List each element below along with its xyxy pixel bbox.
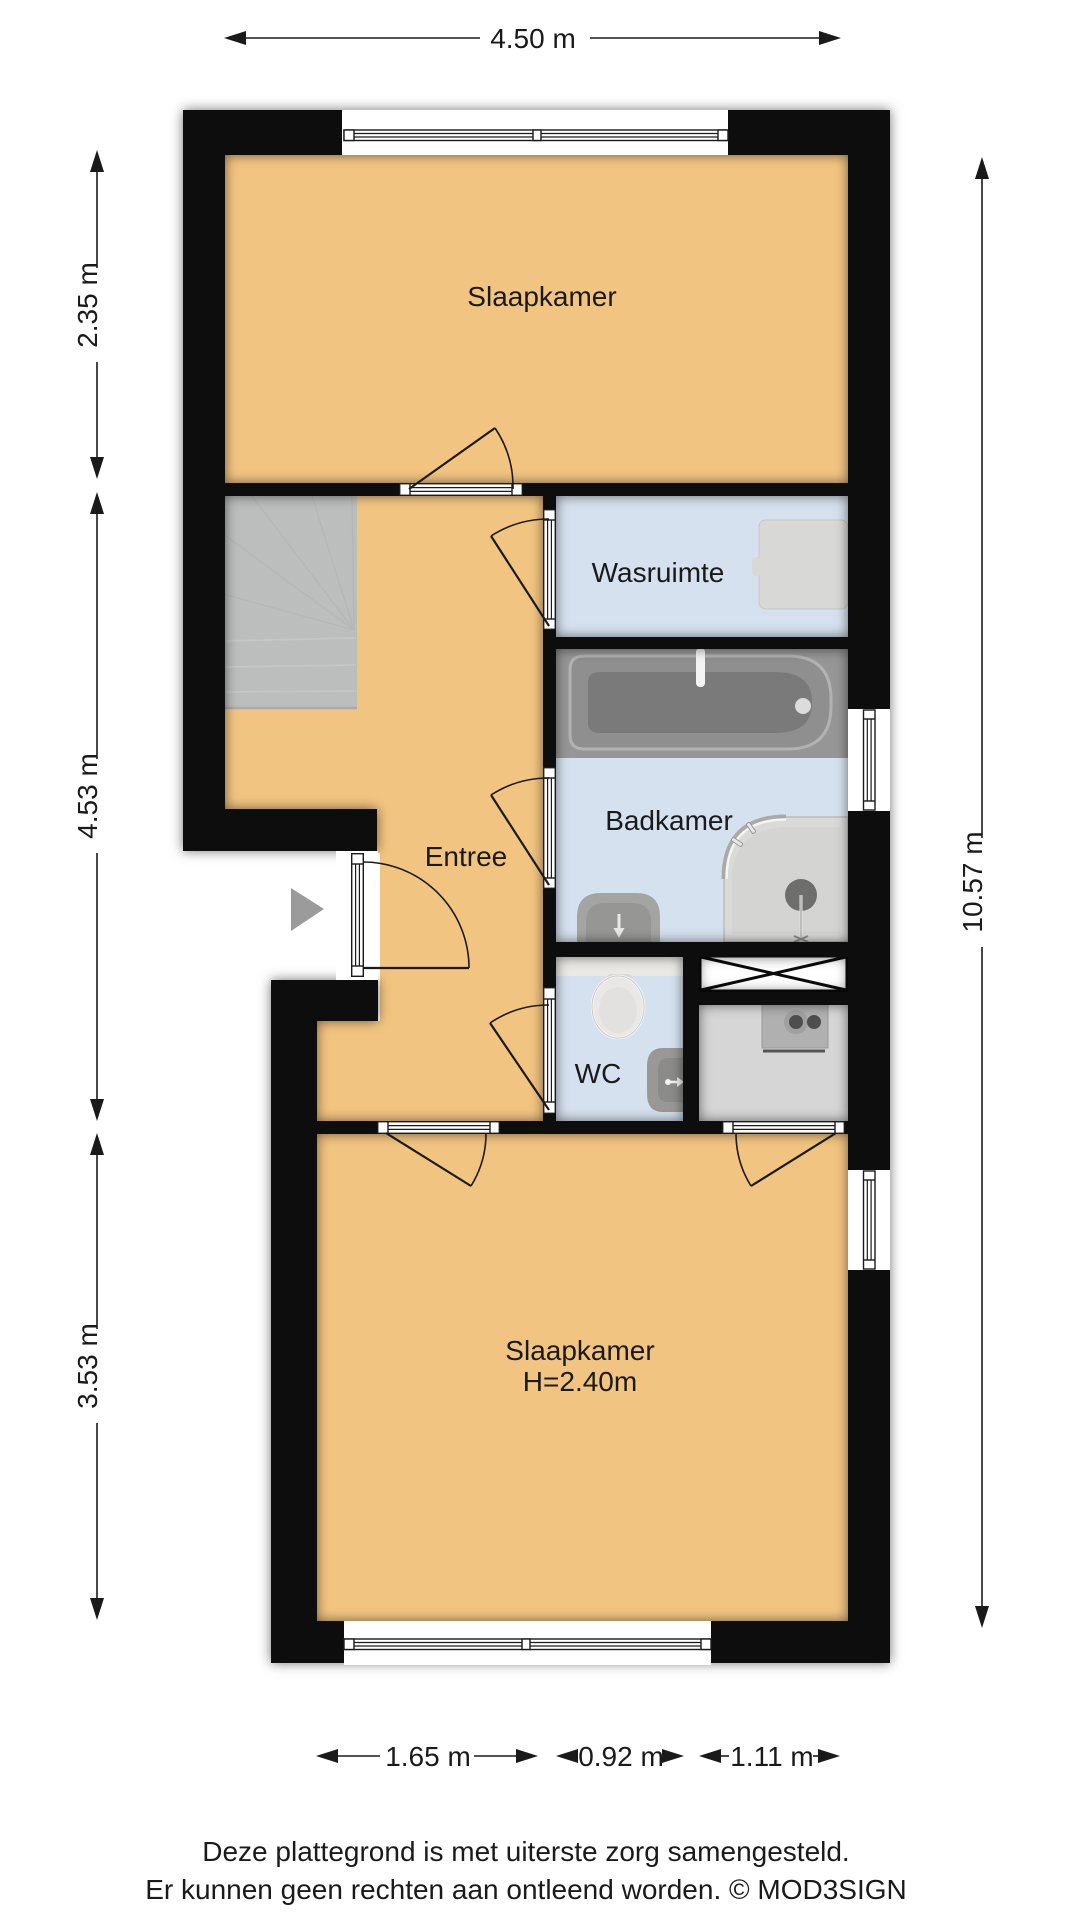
- svg-text:Slaapkamer: Slaapkamer: [467, 281, 616, 312]
- svg-text:WC: WC: [575, 1058, 622, 1089]
- svg-text:4.50 m: 4.50 m: [490, 23, 576, 54]
- svg-text:H=2.40m: H=2.40m: [523, 1366, 637, 1397]
- svg-text:4.53 m: 4.53 m: [72, 753, 103, 839]
- svg-text:Deze plattegrond is met uiters: Deze plattegrond is met uiterste zorg sa…: [202, 1836, 849, 1867]
- svg-text:1.65 m: 1.65 m: [385, 1741, 471, 1772]
- svg-text:Er kunnen geen rechten aan ont: Er kunnen geen rechten aan ontleend word…: [145, 1874, 907, 1905]
- svg-text:Badkamer: Badkamer: [605, 805, 733, 836]
- svg-text:0.92 m: 0.92 m: [578, 1741, 664, 1772]
- svg-text:10.57 m: 10.57 m: [957, 831, 988, 932]
- svg-text:2.35 m: 2.35 m: [72, 262, 103, 348]
- svg-text:Wasruimte: Wasruimte: [592, 557, 725, 588]
- svg-text:Slaapkamer: Slaapkamer: [505, 1335, 654, 1366]
- svg-text:Entree: Entree: [425, 841, 508, 872]
- svg-text:3.53 m: 3.53 m: [72, 1323, 103, 1409]
- svg-text:1.11 m: 1.11 m: [730, 1741, 814, 1772]
